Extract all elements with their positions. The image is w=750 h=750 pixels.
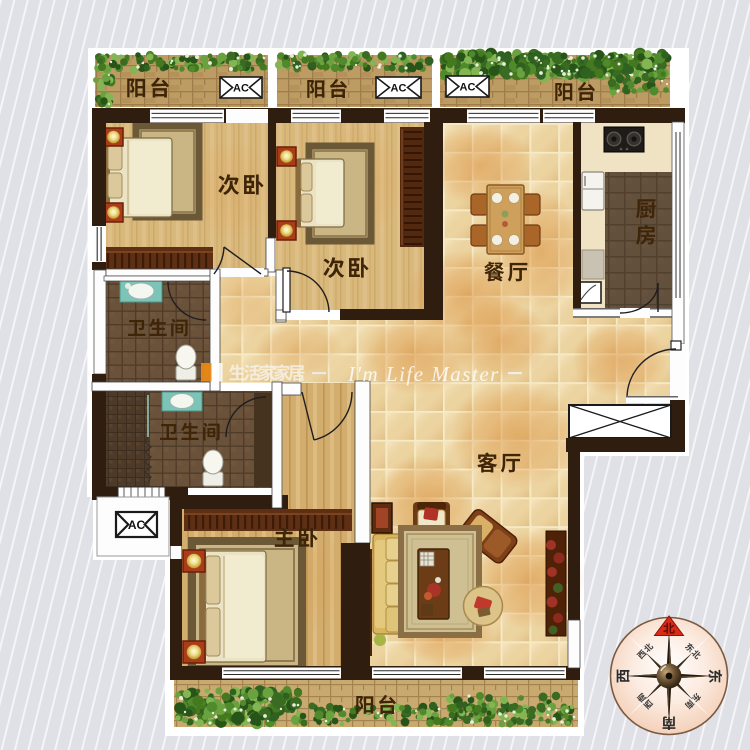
svg-text:AC: AC (391, 82, 407, 94)
svg-text:AC: AC (460, 81, 476, 93)
svg-text:I'm Life Master: I'm Life Master (347, 362, 500, 386)
svg-text:AC: AC (233, 82, 249, 94)
svg-text:AC: AC (128, 518, 146, 532)
